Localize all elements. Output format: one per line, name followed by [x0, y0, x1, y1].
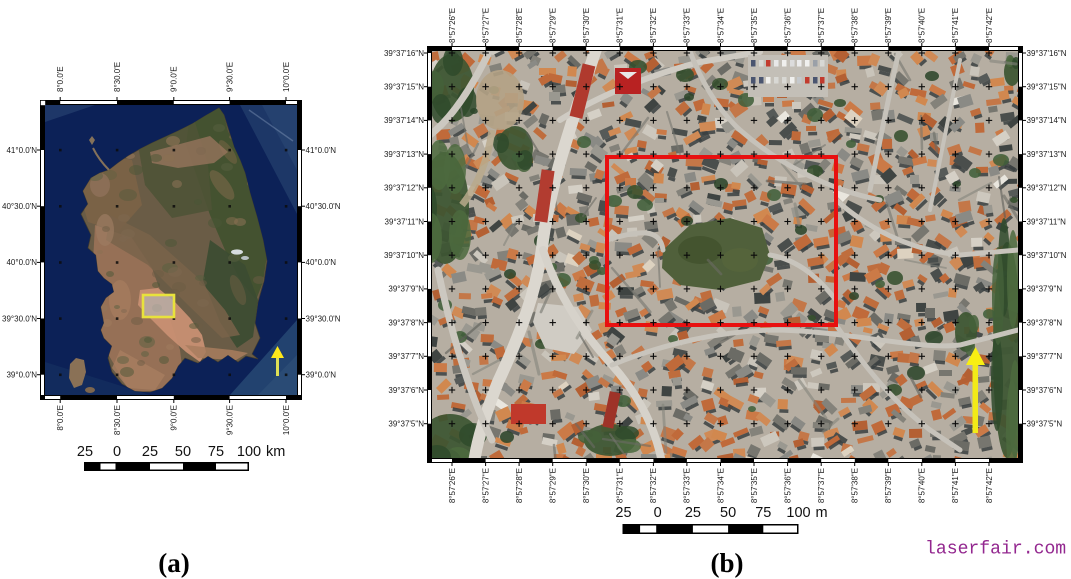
- svg-text:8°57'32"E: 8°57'32"E: [649, 468, 658, 503]
- svg-text:8°57'39"E: 8°57'39"E: [884, 468, 893, 503]
- svg-text:8°57'28"E: 8°57'28"E: [515, 468, 524, 503]
- svg-text:40°0.0'N: 40°0.0'N: [306, 258, 337, 267]
- svg-text:9°0.0'E: 9°0.0'E: [170, 66, 179, 92]
- svg-text:8°57'31"E: 8°57'31"E: [616, 468, 625, 503]
- svg-text:41°0.0'N: 41°0.0'N: [306, 146, 337, 155]
- svg-text:39°37'16"N: 39°37'16"N: [1027, 49, 1067, 58]
- svg-text:39°37'16"N: 39°37'16"N: [384, 49, 424, 58]
- svg-text:39°37'7"N: 39°37'7"N: [388, 352, 424, 361]
- svg-text:39°37'8"N: 39°37'8"N: [1027, 318, 1063, 327]
- svg-text:25: 25: [685, 505, 701, 521]
- svg-text:8°0.0'E: 8°0.0'E: [56, 405, 65, 431]
- svg-text:8°57'41"E: 8°57'41"E: [951, 468, 960, 503]
- svg-text:39°37'14"N: 39°37'14"N: [384, 116, 424, 125]
- svg-text:39°37'6"N: 39°37'6"N: [388, 386, 424, 395]
- svg-text:8°57'42"E: 8°57'42"E: [985, 468, 994, 503]
- svg-text:8°57'40"E: 8°57'40"E: [918, 468, 927, 503]
- svg-text:39°37'12"N: 39°37'12"N: [1027, 184, 1067, 193]
- svg-text:9°30.0'E: 9°30.0'E: [225, 62, 234, 92]
- svg-text:8°30.0'E: 8°30.0'E: [113, 62, 122, 92]
- svg-text:8°57'37"E: 8°57'37"E: [817, 468, 826, 503]
- svg-text:40°30.0'N: 40°30.0'N: [2, 202, 37, 211]
- svg-text:8°57'29"E: 8°57'29"E: [549, 8, 558, 43]
- svg-text:25: 25: [615, 505, 631, 521]
- svg-text:75: 75: [755, 505, 771, 521]
- svg-text:39°37'9"N: 39°37'9"N: [1027, 285, 1063, 294]
- svg-text:50: 50: [175, 444, 191, 460]
- svg-text:8°57'34"E: 8°57'34"E: [716, 468, 725, 503]
- svg-text:39°37'13"N: 39°37'13"N: [1027, 150, 1067, 159]
- svg-text:8°57'32"E: 8°57'32"E: [649, 8, 658, 43]
- svg-text:40°0.0'N: 40°0.0'N: [6, 258, 37, 267]
- svg-text:41°0.0'N: 41°0.0'N: [6, 146, 37, 155]
- svg-text:8°57'35"E: 8°57'35"E: [750, 8, 759, 43]
- svg-text:8°57'33"E: 8°57'33"E: [683, 468, 692, 503]
- svg-text:39°37'11"N: 39°37'11"N: [385, 217, 425, 226]
- svg-text:8°57'42"E: 8°57'42"E: [985, 8, 994, 43]
- svg-text:8°57'37"E: 8°57'37"E: [817, 8, 826, 43]
- svg-text:40°30.0'N: 40°30.0'N: [306, 202, 341, 211]
- svg-text:8°57'30"E: 8°57'30"E: [582, 468, 591, 503]
- svg-text:39°37'5"N: 39°37'5"N: [388, 420, 424, 429]
- svg-text:39°0.0'N: 39°0.0'N: [6, 371, 37, 380]
- svg-text:8°57'34"E: 8°57'34"E: [716, 8, 725, 43]
- svg-text:8°57'41"E: 8°57'41"E: [951, 8, 960, 43]
- svg-text:9°0.0'E: 9°0.0'E: [170, 405, 179, 431]
- svg-text:39°37'14"N: 39°37'14"N: [1027, 116, 1067, 125]
- svg-text:8°57'30"E: 8°57'30"E: [582, 8, 591, 43]
- svg-text:39°37'12"N: 39°37'12"N: [384, 184, 424, 193]
- svg-text:0: 0: [654, 505, 662, 521]
- svg-text:39°37'5"N: 39°37'5"N: [1027, 420, 1063, 429]
- svg-text:50: 50: [720, 505, 736, 521]
- svg-text:8°57'38"E: 8°57'38"E: [851, 468, 860, 503]
- svg-text:8°57'28"E: 8°57'28"E: [515, 8, 524, 43]
- svg-text:39°37'11"N: 39°37'11"N: [1027, 217, 1067, 226]
- svg-text:25: 25: [77, 444, 93, 460]
- svg-text:39°30.0'N: 39°30.0'N: [2, 314, 37, 323]
- svg-text:9°30.0'E: 9°30.0'E: [225, 405, 234, 435]
- svg-text:8°30.0'E: 8°30.0'E: [113, 405, 122, 435]
- svg-text:8°0.0'E: 8°0.0'E: [56, 66, 65, 92]
- svg-text:8°57'27"E: 8°57'27"E: [481, 8, 490, 43]
- svg-text:8°57'29"E: 8°57'29"E: [549, 468, 558, 503]
- svg-text:39°37'8"N: 39°37'8"N: [388, 318, 424, 327]
- svg-text:8°57'26"E: 8°57'26"E: [448, 8, 457, 43]
- svg-text:39°37'9"N: 39°37'9"N: [388, 285, 424, 294]
- svg-text:8°57'27"E: 8°57'27"E: [481, 468, 490, 503]
- svg-text:39°37'10"N: 39°37'10"N: [1027, 251, 1067, 260]
- svg-text:39°37'15"N: 39°37'15"N: [384, 83, 424, 92]
- svg-text:8°57'39"E: 8°57'39"E: [884, 8, 893, 43]
- svg-text:100: 100: [237, 444, 261, 460]
- svg-text:25: 25: [142, 444, 158, 460]
- svg-text:8°57'33"E: 8°57'33"E: [683, 8, 692, 43]
- svg-text:39°30.0'N: 39°30.0'N: [306, 314, 341, 323]
- svg-text:39°37'6"N: 39°37'6"N: [1027, 386, 1063, 395]
- svg-text:75: 75: [208, 444, 224, 460]
- svg-text:39°0.0'N: 39°0.0'N: [306, 371, 337, 380]
- svg-text:39°37'7"N: 39°37'7"N: [1027, 352, 1063, 361]
- svg-text:100: 100: [786, 505, 810, 521]
- svg-text:m: m: [816, 505, 828, 521]
- svg-text:km: km: [266, 444, 285, 460]
- svg-text:10°0.0'E: 10°0.0'E: [282, 62, 291, 92]
- svg-text:8°57'36"E: 8°57'36"E: [783, 468, 792, 503]
- svg-text:39°37'15"N: 39°37'15"N: [1027, 83, 1067, 92]
- svg-text:8°57'40"E: 8°57'40"E: [918, 8, 927, 43]
- svg-text:(b): (b): [711, 548, 744, 578]
- svg-text:8°57'38"E: 8°57'38"E: [851, 8, 860, 43]
- svg-text:0: 0: [113, 444, 121, 460]
- svg-text:39°37'13"N: 39°37'13"N: [384, 150, 424, 159]
- svg-text:8°57'35"E: 8°57'35"E: [750, 468, 759, 503]
- svg-text:8°57'36"E: 8°57'36"E: [783, 8, 792, 43]
- svg-text:laserfair.com: laserfair.com: [925, 540, 1066, 560]
- svg-text:8°57'31"E: 8°57'31"E: [616, 8, 625, 43]
- svg-text:10°0.0'E: 10°0.0'E: [282, 405, 291, 435]
- svg-text:(a): (a): [158, 548, 189, 578]
- svg-text:8°57'26"E: 8°57'26"E: [448, 468, 457, 503]
- svg-text:39°37'10"N: 39°37'10"N: [384, 251, 424, 260]
